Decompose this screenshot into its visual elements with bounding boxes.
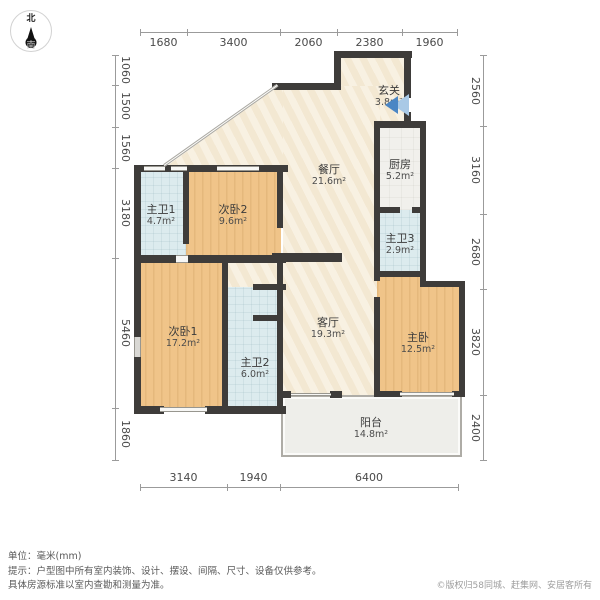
room-area-kitchen: 5.2m² [386,171,414,182]
room-label-master: 主卧12.5m² [401,331,435,355]
dim-label-bottom-2: 6400 [339,471,399,484]
room-area-bath1: 4.7m² [147,216,176,227]
dim-tick-right-0 [480,55,487,56]
room-label-bath3: 主卫32.9m² [386,232,415,256]
dim-tick-left-4 [112,258,119,259]
dim-label-right-0: 2560 [468,61,482,121]
room-area-bath3: 2.9m² [386,245,415,256]
dim-label-left-3: 3180 [118,183,132,243]
wall-kitchen-top [374,121,426,128]
dim-label-top-4: 1960 [400,36,460,49]
wall-mid-stub [272,253,342,262]
room-label-bath1: 主卫14.7m² [147,203,176,227]
floor-dining [283,86,380,398]
wall-mid [134,255,286,263]
floor-bath2 [227,287,281,409]
dim-label-top-0: 1680 [134,36,194,49]
wall-master-bottom-a [374,391,402,397]
room-label-bed2: 次卧29.6m² [219,203,248,227]
room-name-bed2: 次卧2 [219,203,248,216]
room-name-master: 主卧 [401,331,435,344]
window-west [134,337,141,357]
wall-kitchen-west [374,121,380,281]
entrance-door-arrow-icon [384,93,412,117]
dim-tick-bottom-0 [140,484,141,491]
dim-label-left-4: 5460 [118,303,132,363]
dim-label-right-1: 3160 [468,140,482,200]
room-name-dining: 餐厅 [312,163,346,176]
room-name-bath1: 主卫1 [147,203,176,216]
dim-label-top-2: 2060 [279,36,339,49]
room-label-bath2: 主卫26.0m² [241,356,270,380]
room-label-living: 客厅19.3m² [311,316,345,340]
wall-bed1-east [222,258,228,414]
dim-label-left-5: 1860 [118,404,132,464]
wall-bath3-bottom [374,271,426,277]
wall-bed2-east [277,168,283,228]
dim-label-right-2: 2680 [468,222,482,282]
dim-tick-bottom-2 [280,484,281,491]
wall-kitchen-bath3-divider-a [374,207,400,213]
wall-bath2-bottom [227,406,286,414]
dim-tick-bottom-3 [458,484,459,491]
floor-dining-triangle [164,86,283,168]
dim-tick-right-3 [480,289,487,290]
window-balcony-door [291,393,331,396]
dim-tick-top-2 [280,29,281,36]
room-area-balcony: 14.8m² [354,429,388,440]
room-name-living: 客厅 [311,316,345,329]
dim-label-bottom-0: 3140 [154,471,214,484]
wall-master-east [459,281,465,397]
plan-layer: 玄关3.8m²餐厅21.6m²厨房5.2m²主卫14.7m²次卧29.6m²主卫… [0,0,600,600]
wall-balcony-stub-l [277,391,291,398]
wall-balcony-stub-r [330,391,342,398]
room-name-kitchen: 厨房 [386,158,414,171]
unit-note: 单位：毫米(mm) [8,550,322,565]
dim-tick-right-1 [480,126,487,127]
window-north-1 [144,166,165,171]
room-area-dining: 21.6m² [312,176,346,187]
dim-label-top-1: 3400 [204,36,264,49]
tip-note-line1: 提示：户型图中所有室内装饰、设计、摆设、间隔、尺寸、设备仅供参考。 [8,565,322,580]
dim-label-top-3: 2380 [340,36,400,49]
dim-line-right [483,55,484,460]
room-label-dining: 餐厅21.6m² [312,163,346,187]
footer-notes: 单位：毫米(mm) 提示：户型图中所有室内装饰、设计、摆设、间隔、尺寸、设备仅供… [8,550,322,594]
wall-kitchen-east [420,121,426,283]
floorplan-canvas: 北 南 玄关3.8m²餐厅21.6m²厨房5.2m²主卫14.7m²次卧29.6… [0,0,600,600]
dim-label-right-3: 3820 [468,312,482,372]
room-area-bed2: 9.6m² [219,216,248,227]
room-label-kitchen: 厨房5.2m² [386,158,414,182]
wall-master-west [374,297,380,397]
dim-tick-right-5 [480,460,487,461]
dim-tick-top-3 [337,29,338,36]
wall-bath2-stub [253,315,283,321]
wall-west [134,165,141,414]
dim-tick-right-4 [480,395,487,396]
dim-tick-top-5 [457,29,458,36]
room-name-bath3: 主卫3 [386,232,415,245]
dim-tick-top-0 [140,29,141,36]
wall-entrance-top [334,51,412,58]
room-area-bed1: 17.2m² [166,338,200,349]
room-name-balcony: 阳台 [354,416,388,429]
room-label-balcony: 阳台14.8m² [354,416,388,440]
dim-label-right-4: 2400 [468,398,482,458]
wall-dining-top [272,83,341,90]
tip-note-line2: 具体房源标准以室内查勘和测量为准。 [8,579,322,594]
room-label-bed1: 次卧117.2m² [166,325,200,349]
copyright-note: ©版权归58同城、赶集网、安居客所有 [437,578,592,591]
window-south [160,407,207,412]
dim-label-bottom-1: 1940 [224,471,284,484]
dim-tick-bottom-1 [227,484,228,491]
wall-entrance-right-upper [404,51,411,98]
window-north-3 [217,166,259,171]
dim-tick-top-1 [187,29,188,36]
dim-label-left-2: 1560 [118,118,132,178]
wall-bath1-east [183,168,189,244]
room-name-bath2: 主卫2 [241,356,270,369]
dim-line-bottom [140,487,458,488]
wall-kitchen-bath3-divider-b [412,207,426,213]
room-area-bath2: 6.0m² [241,369,270,380]
dim-tick-right-2 [480,214,487,215]
room-area-master: 12.5m² [401,344,435,355]
window-master-bottom [400,392,454,396]
window-mid-door-gap [176,255,188,263]
dim-tick-top-4 [402,29,403,36]
room-area-living: 19.3m² [311,329,345,340]
room-name-bed1: 次卧1 [166,325,200,338]
window-north-2 [171,166,187,171]
